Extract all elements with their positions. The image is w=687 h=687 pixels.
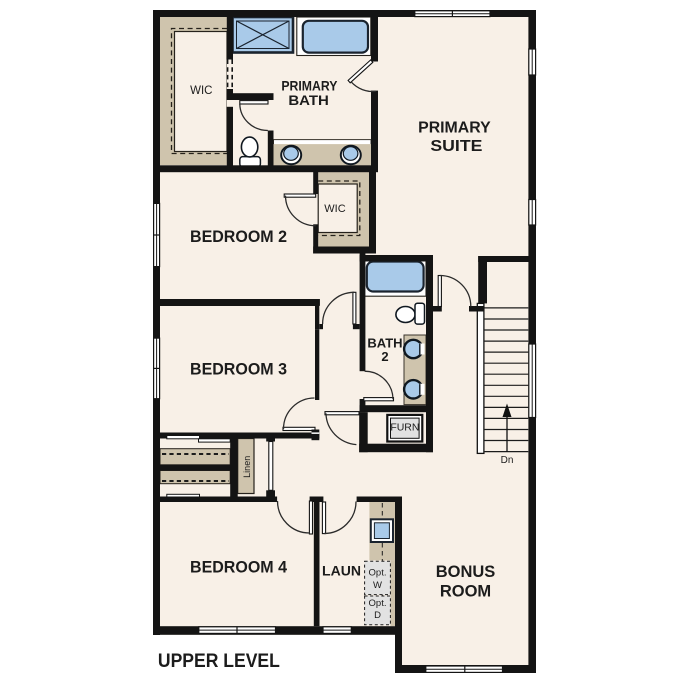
svg-text:Dn: Dn	[501, 455, 514, 466]
svg-text:Opt.: Opt.	[369, 598, 387, 609]
svg-text:LAUN: LAUN	[322, 563, 361, 579]
svg-text:BONUS: BONUS	[436, 563, 496, 581]
svg-text:UPPER LEVEL: UPPER LEVEL	[158, 651, 280, 672]
svg-text:Opt.: Opt.	[369, 568, 387, 579]
svg-text:WIC: WIC	[190, 85, 212, 97]
svg-text:BEDROOM 4: BEDROOM 4	[190, 557, 288, 576]
svg-text:WIC: WIC	[324, 203, 345, 215]
svg-text:BATH: BATH	[288, 92, 329, 108]
svg-text:PRIMARY: PRIMARY	[281, 78, 338, 94]
svg-text:Linen: Linen	[242, 456, 252, 478]
svg-text:SUITE: SUITE	[430, 138, 482, 155]
svg-text:ROOM: ROOM	[440, 583, 491, 601]
svg-text:BEDROOM 3: BEDROOM 3	[190, 360, 287, 379]
svg-text:W: W	[373, 580, 382, 591]
svg-text:FURN: FURN	[390, 422, 419, 434]
svg-text:2: 2	[381, 349, 388, 364]
svg-text:D: D	[374, 610, 381, 621]
svg-text:BEDROOM 2: BEDROOM 2	[190, 227, 287, 246]
svg-text:PRIMARY: PRIMARY	[418, 119, 491, 136]
